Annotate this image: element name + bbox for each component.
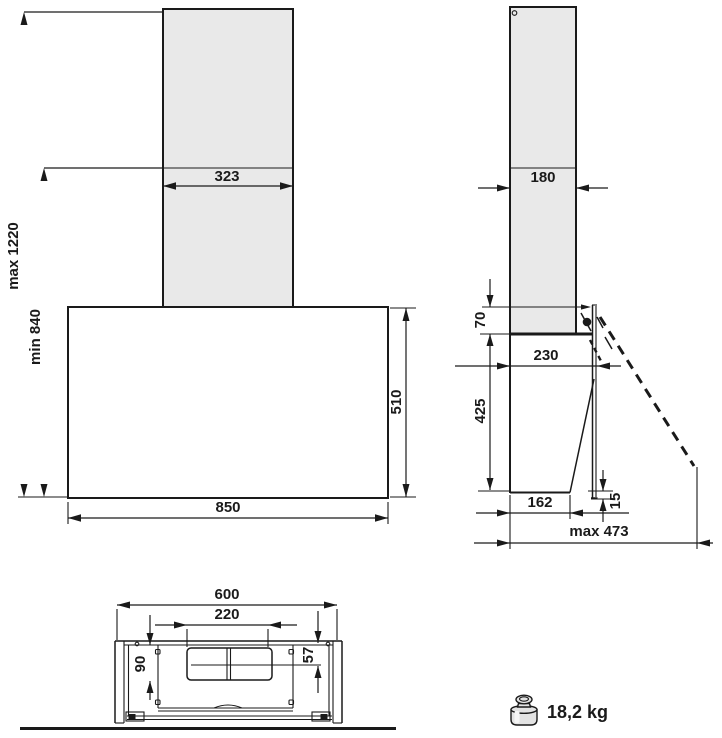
front-chimney-width-label: 323 xyxy=(214,168,239,185)
duct-offset-right-label: 57 xyxy=(300,647,317,664)
front-body-width-label: 850 xyxy=(215,499,240,516)
mount-height-min-label: min 840 xyxy=(27,309,44,365)
side-body-height-label: 425 xyxy=(472,398,489,423)
mount-height-max-label: max 1220 xyxy=(5,222,22,290)
front-chimney xyxy=(163,9,293,308)
weight-label: 18,2 kg xyxy=(547,702,608,722)
door-open-dashed-line xyxy=(600,317,694,466)
dimension-drawing-page: 323 max 1220 min 840 510 xyxy=(0,0,722,738)
bottom-width-label: 600 xyxy=(214,586,239,603)
side-body-depth-label: 230 xyxy=(533,347,558,364)
weight-icon xyxy=(511,695,537,725)
side-glass-panel xyxy=(591,305,598,498)
dim-front-body-width: 850 xyxy=(68,499,388,524)
dim-front-body-height: 510 xyxy=(388,308,416,497)
dim-duct-offset-left: 90 xyxy=(132,615,154,700)
dim-duct-offset-right: 57 xyxy=(300,611,322,693)
panel-top-offset-label: 70 xyxy=(472,312,489,329)
filter-panel xyxy=(156,645,294,711)
panel-bottom-offset-label: 15 xyxy=(607,493,624,510)
dim-side-body-height: 425 xyxy=(472,334,510,491)
duct-offset-left-label: 90 xyxy=(132,656,149,673)
bottom-view: 600 220 90 57 xyxy=(20,586,396,729)
side-chimney-depth-label: 180 xyxy=(530,169,555,186)
dim-panel-bottom-offset: 15 xyxy=(588,470,624,522)
weight-spec: 18,2 kg xyxy=(511,695,608,725)
front-body-height-label: 510 xyxy=(388,389,405,414)
duct-width-label: 220 xyxy=(214,606,239,623)
front-hood-body xyxy=(68,307,388,498)
side-bottom-depth-label: 162 xyxy=(527,494,552,511)
open-depth-max-label: max 473 xyxy=(569,523,628,540)
side-view: 180 xyxy=(455,7,713,549)
technical-drawing: 323 max 1220 min 840 510 xyxy=(0,0,722,738)
front-view: 323 max 1220 min 840 510 xyxy=(5,9,416,524)
